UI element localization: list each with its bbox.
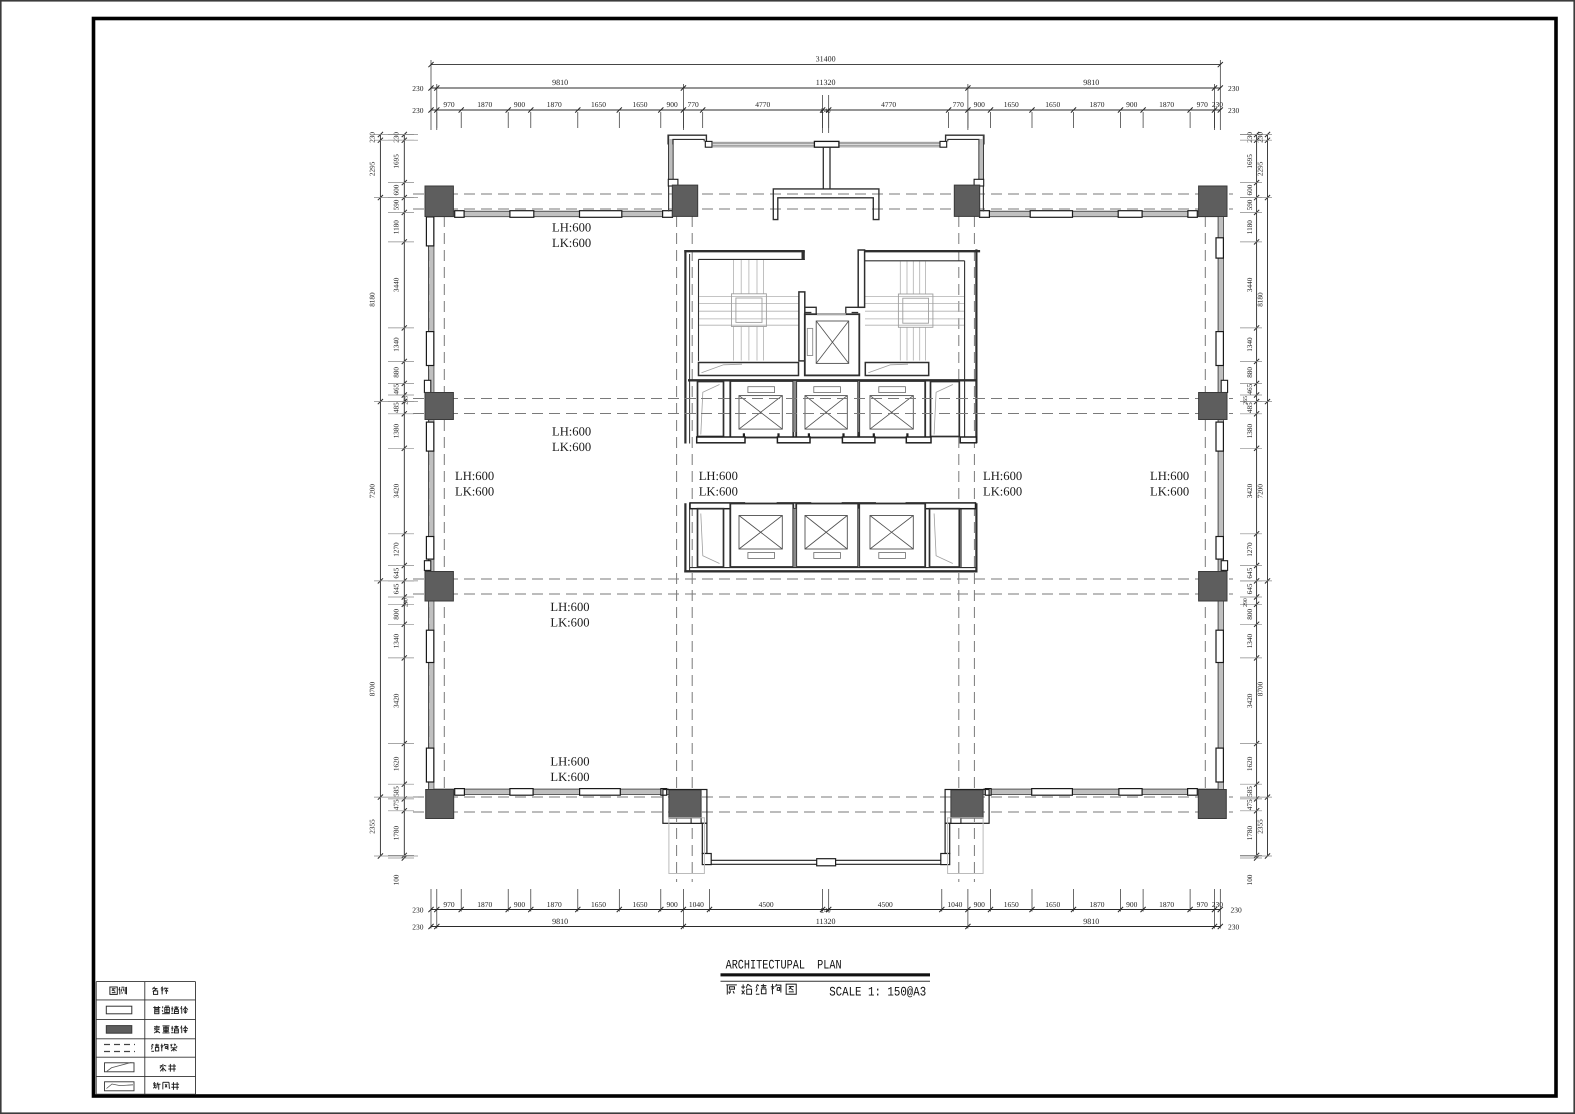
svg-text:1340: 1340 bbox=[393, 337, 401, 352]
svg-text:585: 585 bbox=[1246, 786, 1254, 797]
svg-text:1650: 1650 bbox=[1004, 900, 1019, 909]
svg-text:230: 230 bbox=[412, 106, 424, 115]
svg-text:8700: 8700 bbox=[369, 681, 377, 696]
svg-text:7200: 7200 bbox=[1257, 484, 1265, 499]
svg-text:1650: 1650 bbox=[633, 900, 648, 909]
svg-text:1695: 1695 bbox=[393, 154, 401, 169]
svg-text:265: 265 bbox=[404, 396, 410, 405]
svg-text:7200: 7200 bbox=[369, 484, 377, 499]
svg-text:1180: 1180 bbox=[1246, 220, 1254, 235]
svg-text:1870: 1870 bbox=[477, 100, 492, 109]
svg-text:4500: 4500 bbox=[878, 900, 893, 909]
svg-text:900: 900 bbox=[666, 100, 678, 109]
svg-text:230: 230 bbox=[1228, 84, 1240, 93]
svg-text:LK:600: LK:600 bbox=[983, 484, 1022, 498]
svg-text:770: 770 bbox=[953, 100, 965, 109]
svg-text:1620: 1620 bbox=[393, 756, 401, 771]
svg-text:880: 880 bbox=[1246, 367, 1254, 378]
svg-text:1650: 1650 bbox=[1045, 900, 1060, 909]
svg-text:645: 645 bbox=[393, 583, 401, 594]
svg-text:LK:600: LK:600 bbox=[552, 236, 591, 250]
svg-text:1380: 1380 bbox=[393, 424, 401, 439]
svg-text:475: 475 bbox=[393, 799, 401, 810]
svg-text:1620: 1620 bbox=[1246, 756, 1254, 771]
svg-text:900: 900 bbox=[514, 900, 526, 909]
svg-text:SCALE 1: 150@A3: SCALE 1: 150@A3 bbox=[829, 985, 926, 1000]
svg-text:3440: 3440 bbox=[1246, 277, 1254, 292]
svg-text:1340: 1340 bbox=[393, 634, 401, 649]
svg-text:230: 230 bbox=[393, 132, 401, 143]
svg-text:1870: 1870 bbox=[1159, 100, 1174, 109]
svg-text:900: 900 bbox=[1126, 100, 1138, 109]
svg-text:LK:600: LK:600 bbox=[550, 615, 589, 629]
svg-text:1040: 1040 bbox=[689, 900, 704, 909]
svg-text:1650: 1650 bbox=[591, 900, 606, 909]
svg-text:9810: 9810 bbox=[552, 917, 568, 926]
svg-text:770: 770 bbox=[687, 100, 699, 109]
svg-text:240: 240 bbox=[821, 108, 832, 115]
svg-text:900: 900 bbox=[666, 900, 678, 909]
svg-text:970: 970 bbox=[443, 900, 455, 909]
svg-text:1650: 1650 bbox=[591, 100, 606, 109]
svg-text:1870: 1870 bbox=[1090, 900, 1105, 909]
svg-text:ARCHITECTUPAL PLAN: ARCHITECTUPAL PLAN bbox=[726, 957, 842, 972]
svg-text:485: 485 bbox=[1246, 402, 1254, 413]
svg-text:LK:600: LK:600 bbox=[550, 770, 589, 784]
svg-text:475: 475 bbox=[1246, 799, 1254, 810]
svg-text:585: 585 bbox=[393, 786, 401, 797]
svg-text:9810: 9810 bbox=[1083, 917, 1099, 926]
svg-text:880: 880 bbox=[393, 367, 401, 378]
svg-text:LK:600: LK:600 bbox=[455, 484, 494, 498]
svg-text:800: 800 bbox=[393, 609, 401, 620]
svg-text:100: 100 bbox=[393, 874, 401, 885]
svg-text:230: 230 bbox=[369, 132, 377, 143]
svg-text:LH:600: LH:600 bbox=[699, 469, 738, 483]
svg-text:900: 900 bbox=[1126, 900, 1138, 909]
svg-text:8180: 8180 bbox=[1257, 292, 1265, 307]
svg-text:230: 230 bbox=[1212, 900, 1224, 909]
svg-text:290: 290 bbox=[1243, 598, 1249, 607]
svg-text:1650: 1650 bbox=[1045, 100, 1060, 109]
svg-text:1780: 1780 bbox=[393, 826, 401, 841]
svg-text:3420: 3420 bbox=[1246, 693, 1254, 708]
svg-text:230: 230 bbox=[1246, 132, 1254, 143]
svg-text:485: 485 bbox=[393, 402, 401, 413]
svg-text:4500: 4500 bbox=[759, 900, 774, 909]
svg-text:1270: 1270 bbox=[1246, 542, 1254, 557]
svg-text:2355: 2355 bbox=[1257, 819, 1265, 834]
svg-text:230: 230 bbox=[1228, 923, 1240, 932]
svg-text:970: 970 bbox=[1197, 100, 1209, 109]
svg-text:590: 590 bbox=[1246, 199, 1254, 210]
svg-text:645: 645 bbox=[1246, 567, 1254, 578]
svg-text:3440: 3440 bbox=[393, 277, 401, 292]
svg-text:970: 970 bbox=[1197, 900, 1209, 909]
svg-text:4770: 4770 bbox=[881, 100, 896, 109]
svg-text:465: 465 bbox=[1246, 383, 1254, 394]
svg-text:11320: 11320 bbox=[816, 917, 836, 926]
svg-text:LK:600: LK:600 bbox=[1150, 484, 1189, 498]
svg-text:100: 100 bbox=[1246, 874, 1254, 885]
svg-text:2295: 2295 bbox=[1257, 161, 1265, 176]
svg-text:600: 600 bbox=[393, 184, 401, 195]
svg-text:8700: 8700 bbox=[1257, 681, 1265, 696]
svg-text:1780: 1780 bbox=[1246, 826, 1254, 841]
svg-text:240: 240 bbox=[821, 907, 832, 914]
svg-text:9810: 9810 bbox=[552, 78, 568, 87]
svg-text:230: 230 bbox=[1257, 132, 1265, 143]
svg-text:1380: 1380 bbox=[1246, 424, 1254, 439]
svg-text:LH:600: LH:600 bbox=[550, 755, 589, 769]
svg-text:1650: 1650 bbox=[1004, 100, 1019, 109]
svg-text:LK:600: LK:600 bbox=[552, 440, 591, 454]
svg-text:LK:600: LK:600 bbox=[699, 484, 738, 498]
svg-text:1340: 1340 bbox=[1246, 634, 1254, 649]
svg-text:LH:600: LH:600 bbox=[455, 469, 494, 483]
svg-text:LH:600: LH:600 bbox=[550, 600, 589, 614]
svg-text:590: 590 bbox=[393, 199, 401, 210]
svg-text:1870: 1870 bbox=[1159, 900, 1174, 909]
svg-text:645: 645 bbox=[1246, 583, 1254, 594]
svg-text:4770: 4770 bbox=[755, 100, 770, 109]
svg-text:1180: 1180 bbox=[393, 220, 401, 235]
svg-text:1870: 1870 bbox=[547, 900, 562, 909]
svg-text:1695: 1695 bbox=[1246, 154, 1254, 169]
svg-text:2355: 2355 bbox=[369, 819, 377, 834]
svg-text:LH:600: LH:600 bbox=[552, 221, 591, 235]
svg-text:465: 465 bbox=[393, 383, 401, 394]
svg-text:230: 230 bbox=[412, 923, 424, 932]
svg-text:1340: 1340 bbox=[1246, 337, 1254, 352]
svg-text:900: 900 bbox=[974, 100, 986, 109]
svg-text:290: 290 bbox=[404, 598, 410, 607]
svg-text:230: 230 bbox=[412, 906, 424, 915]
svg-text:LH:600: LH:600 bbox=[1150, 469, 1189, 483]
svg-text:3420: 3420 bbox=[1246, 483, 1254, 498]
svg-text:1040: 1040 bbox=[947, 900, 962, 909]
svg-text:31400: 31400 bbox=[816, 55, 836, 64]
svg-text:600: 600 bbox=[1246, 184, 1254, 195]
svg-text:230: 230 bbox=[412, 84, 424, 93]
svg-text:9810: 9810 bbox=[1083, 78, 1099, 87]
svg-text:230: 230 bbox=[1228, 106, 1240, 115]
svg-text:LH:600: LH:600 bbox=[552, 425, 591, 439]
svg-text:800: 800 bbox=[1246, 609, 1254, 620]
svg-text:11320: 11320 bbox=[816, 78, 836, 87]
svg-text:1870: 1870 bbox=[1090, 100, 1105, 109]
svg-text:3420: 3420 bbox=[393, 693, 401, 708]
svg-text:900: 900 bbox=[974, 900, 986, 909]
svg-text:2295: 2295 bbox=[369, 161, 377, 176]
svg-text:LH:600: LH:600 bbox=[983, 469, 1022, 483]
svg-text:8180: 8180 bbox=[369, 292, 377, 307]
svg-text:230: 230 bbox=[1231, 906, 1243, 915]
svg-text:1270: 1270 bbox=[393, 542, 401, 557]
svg-text:230: 230 bbox=[1212, 100, 1224, 109]
svg-text:900: 900 bbox=[514, 100, 526, 109]
svg-text:1870: 1870 bbox=[547, 100, 562, 109]
svg-text:1870: 1870 bbox=[477, 900, 492, 909]
svg-text:1650: 1650 bbox=[633, 100, 648, 109]
svg-text:3420: 3420 bbox=[393, 483, 401, 498]
svg-text:970: 970 bbox=[443, 100, 455, 109]
svg-text:645: 645 bbox=[393, 567, 401, 578]
